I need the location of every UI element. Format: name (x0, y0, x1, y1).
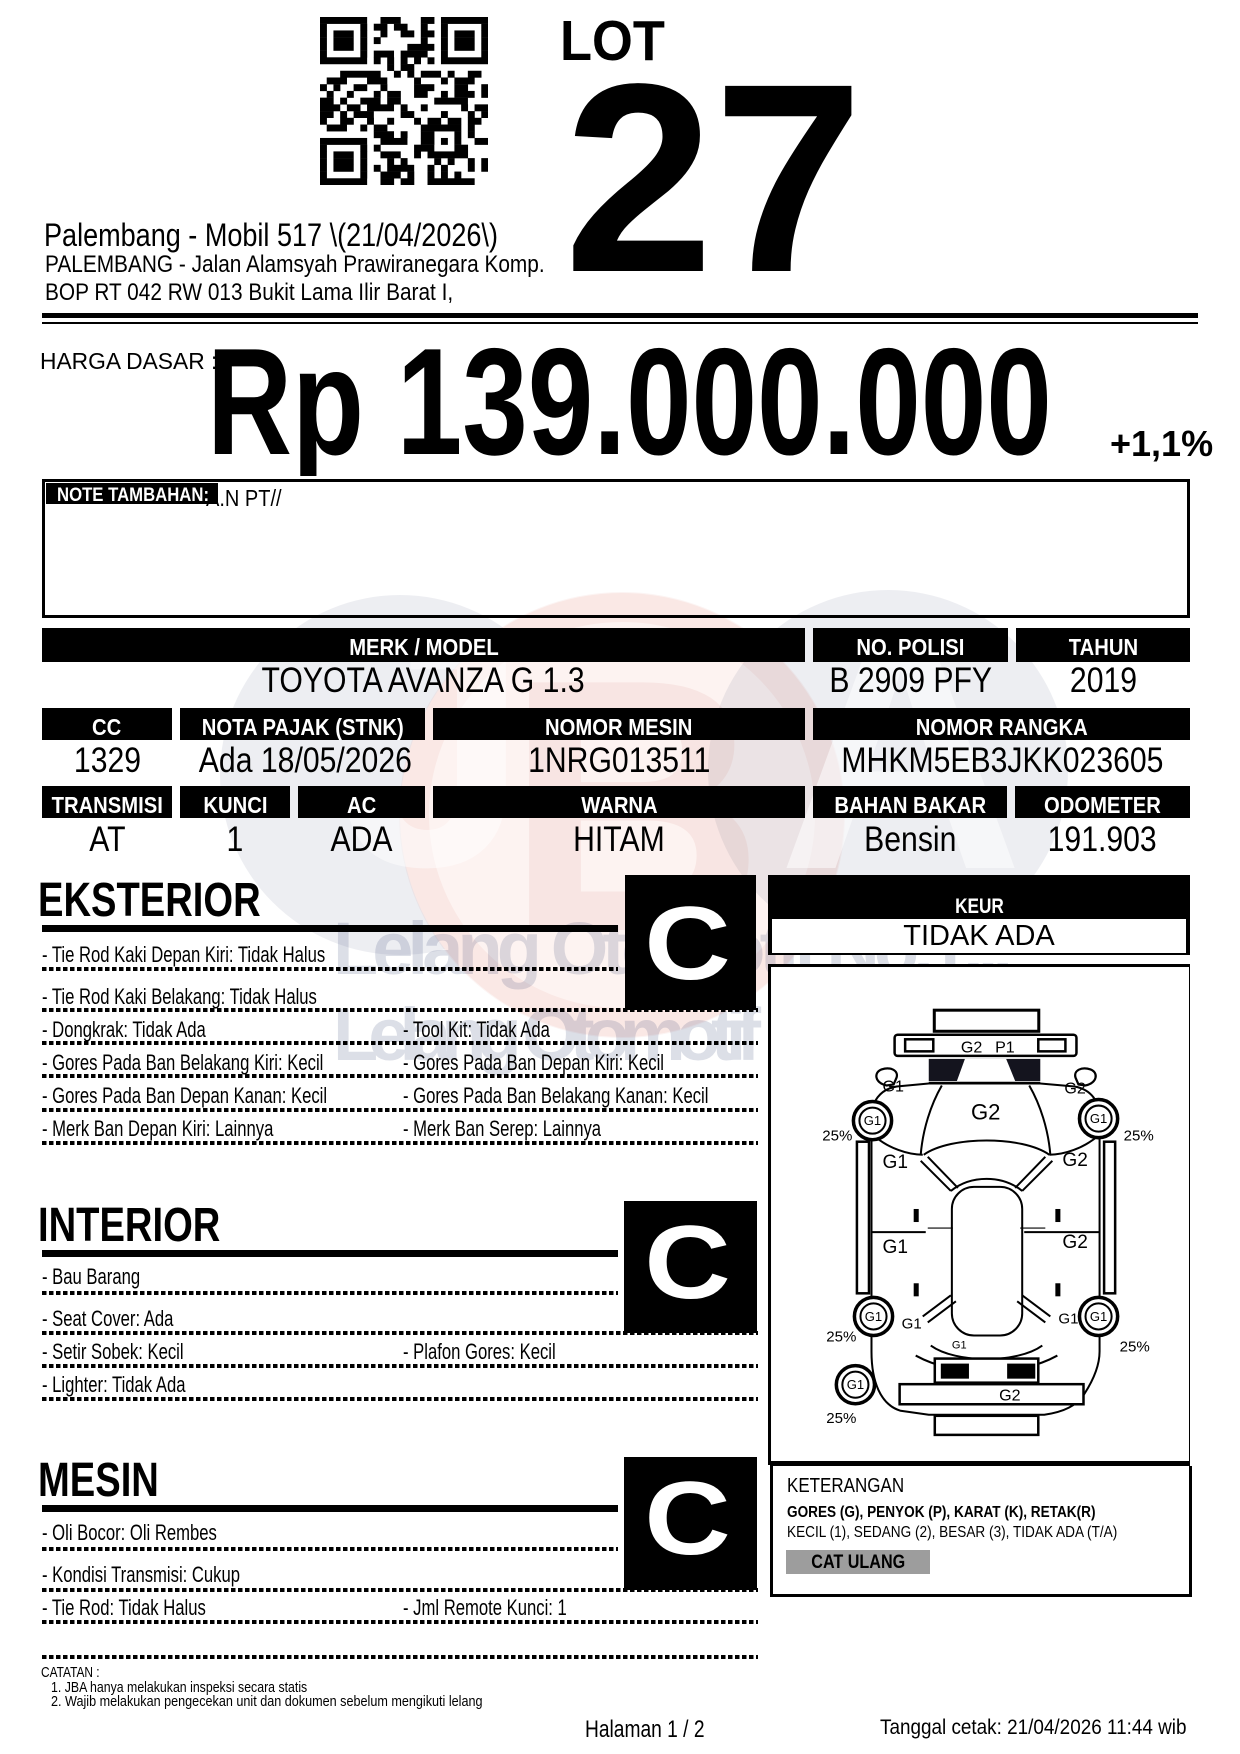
svg-text:25%: 25% (822, 1128, 852, 1145)
svg-text:G2: G2 (1062, 1150, 1087, 1171)
svg-text:25%: 25% (826, 1410, 856, 1427)
svg-text:G1: G1 (1058, 1310, 1078, 1327)
svg-text:P1: P1 (995, 1038, 1015, 1056)
svg-text:G1: G1 (865, 1309, 882, 1324)
svg-text:G1: G1 (883, 1237, 908, 1258)
svg-text:G2: G2 (971, 1100, 1000, 1125)
svg-text:G1: G1 (847, 1377, 864, 1392)
svg-text:G1: G1 (1090, 1111, 1107, 1126)
svg-text:G2: G2 (961, 1038, 983, 1056)
svg-text:25%: 25% (1120, 1339, 1150, 1356)
svg-text:G1: G1 (902, 1315, 922, 1332)
svg-text:25%: 25% (1124, 1128, 1154, 1145)
svg-text:G1: G1 (864, 1113, 881, 1128)
svg-text:25%: 25% (826, 1329, 856, 1346)
svg-text:G2: G2 (1062, 1232, 1087, 1253)
svg-text:G1: G1 (1090, 1309, 1107, 1324)
svg-text:G2: G2 (999, 1387, 1021, 1405)
svg-text:G1: G1 (883, 1152, 908, 1173)
svg-text:G1: G1 (952, 1340, 967, 1352)
svg-text:G1: G1 (883, 1078, 905, 1096)
svg-text:G2: G2 (1064, 1080, 1086, 1098)
